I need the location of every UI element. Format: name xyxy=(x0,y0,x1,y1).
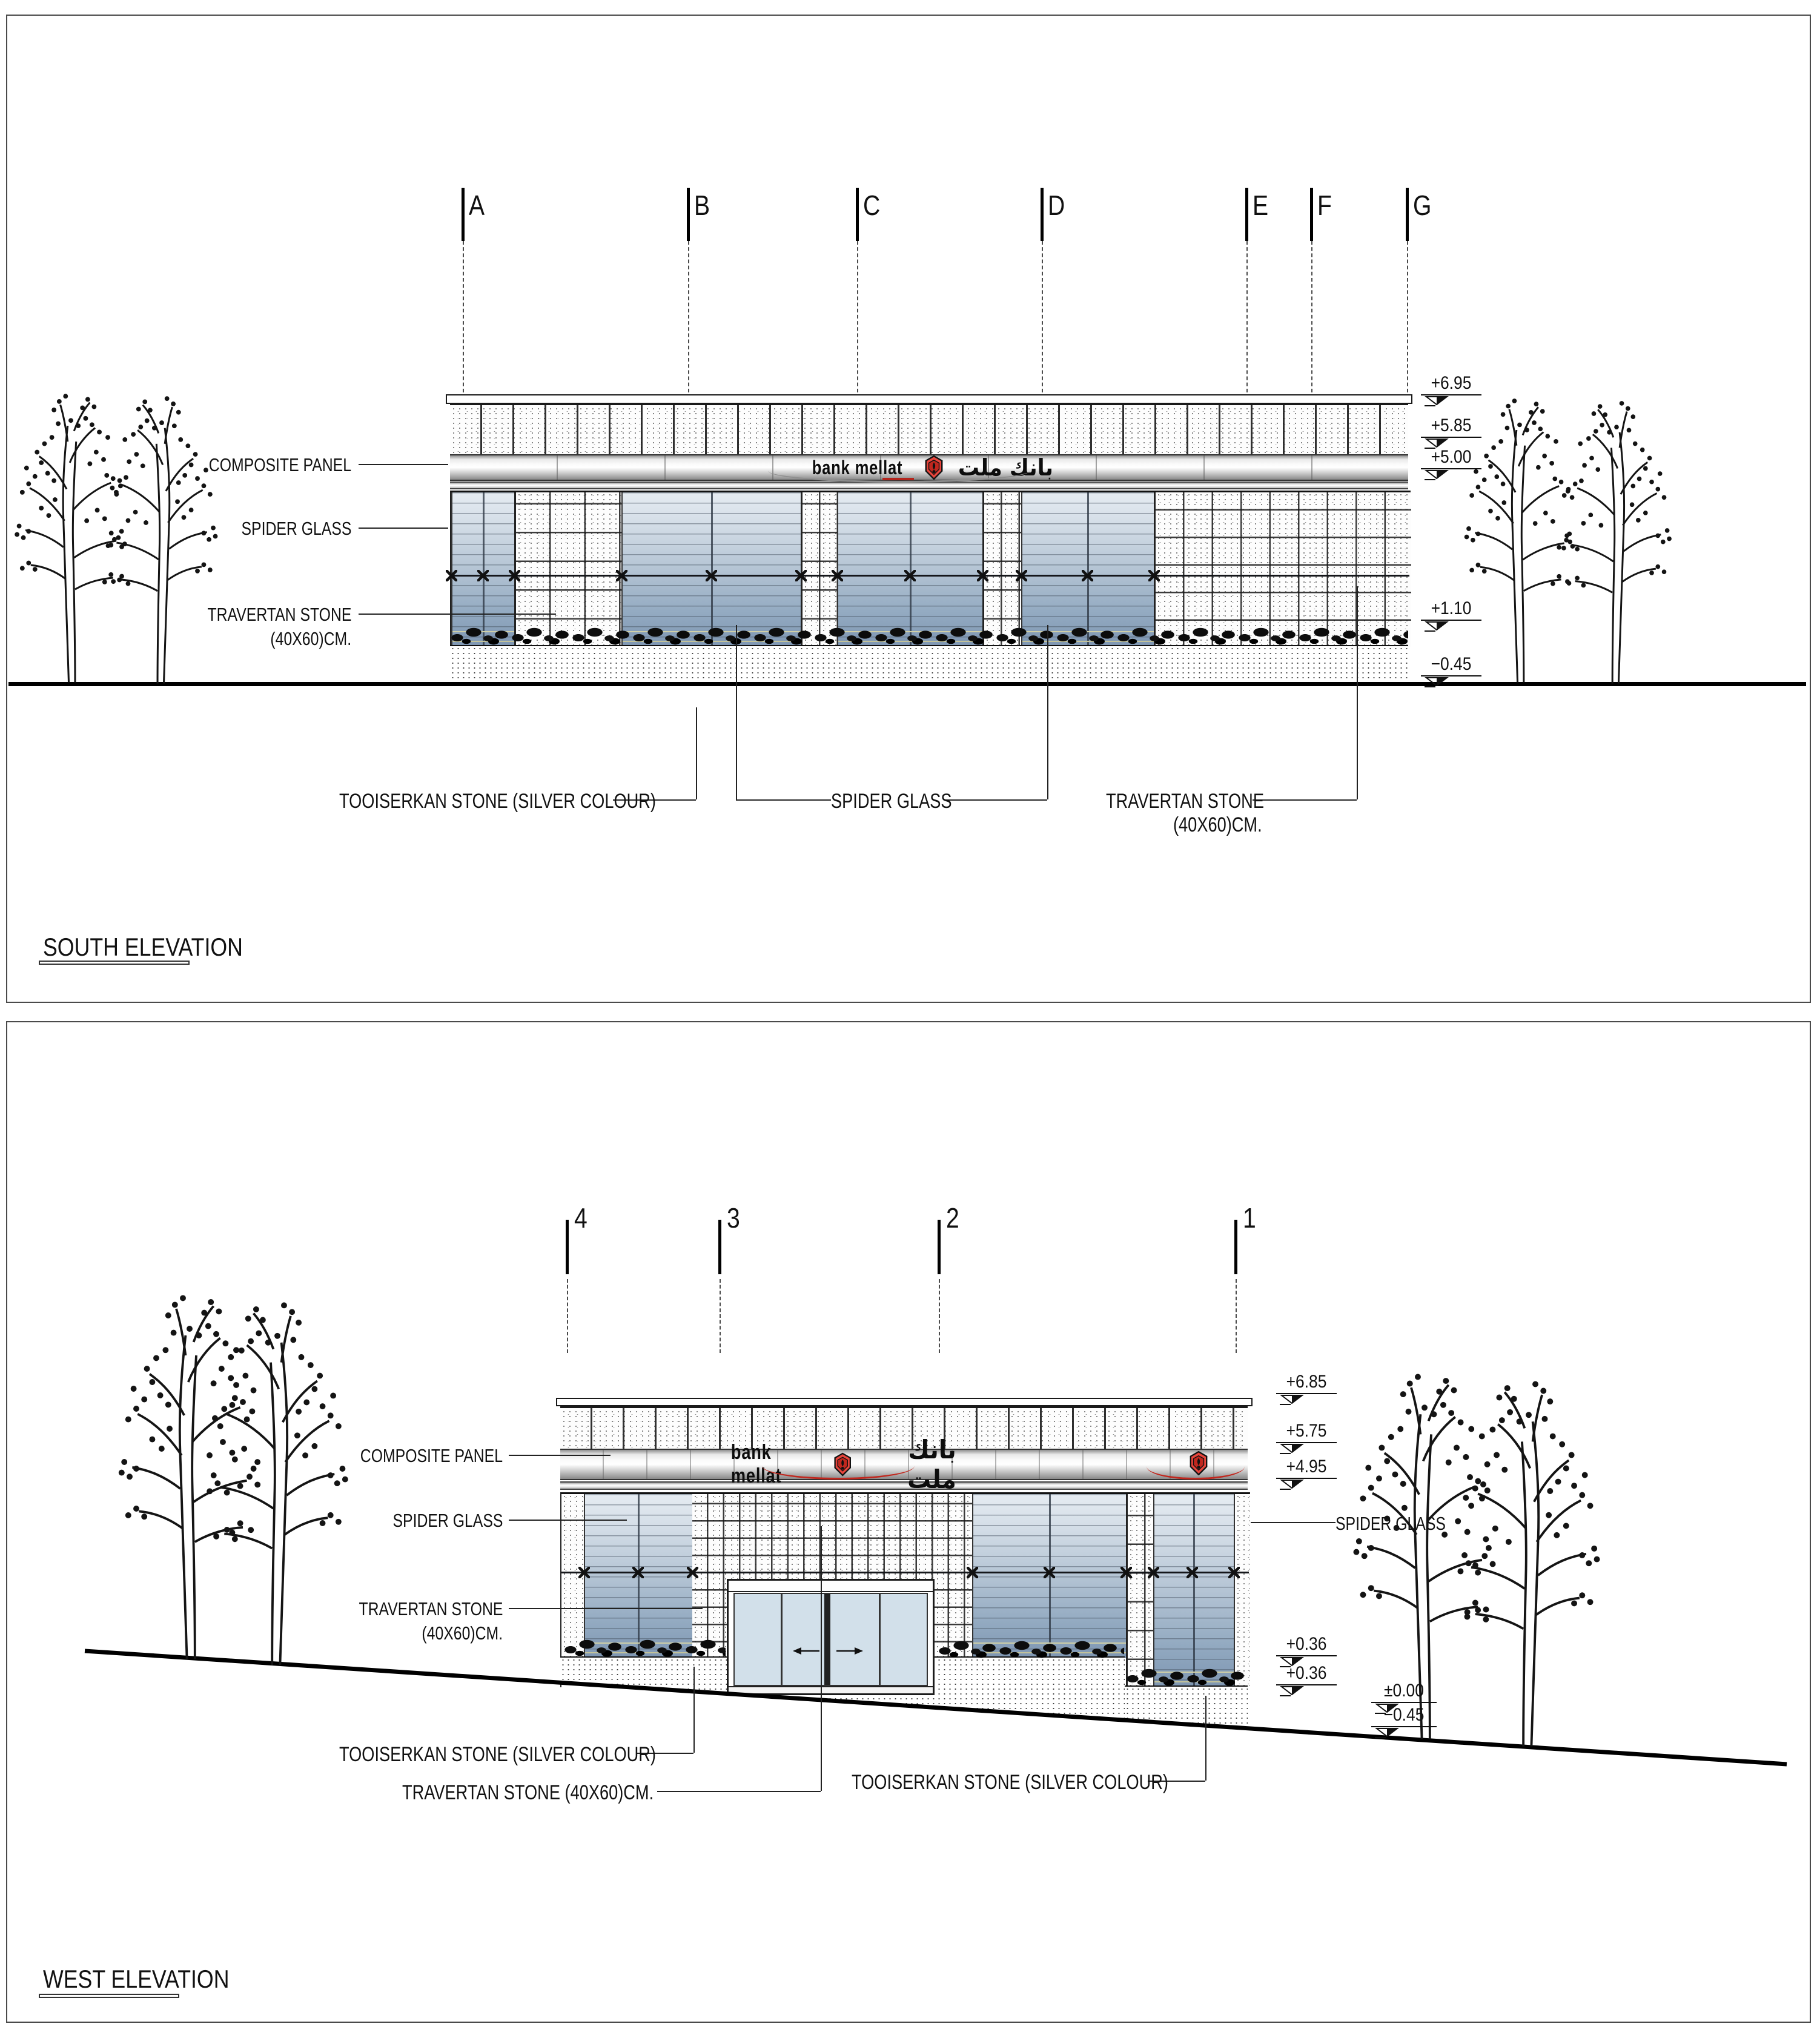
gridline-g-line xyxy=(1407,241,1408,399)
leader-line xyxy=(693,1667,695,1753)
level-value: ±0.00 xyxy=(1378,1681,1429,1701)
label-travertan-size: (40X60)CM. xyxy=(422,1622,503,1644)
level-value: −0.45 xyxy=(1428,654,1474,675)
level-value: +6.85 xyxy=(1283,1372,1329,1392)
leader-line xyxy=(736,625,737,799)
leader-line xyxy=(359,614,556,615)
signage-red-swoosh xyxy=(1147,1454,1245,1480)
label-spider-glass: SPIDER GLASS xyxy=(241,518,351,540)
level-value: +5.75 xyxy=(1283,1421,1329,1441)
gridline-b-tick xyxy=(687,188,690,241)
spider-fitting-icon xyxy=(1016,570,1027,581)
shrubbery xyxy=(450,623,1408,645)
leader-line xyxy=(1251,1522,1335,1523)
label-travertan-bottom-size: (40X60)CM. xyxy=(1173,813,1262,837)
gridline-f-label: F xyxy=(1317,189,1332,222)
level-marker: −0.45 xyxy=(1375,1705,1433,1727)
gridline-b-line xyxy=(688,241,689,399)
spider-fitting-icon xyxy=(1120,1567,1132,1578)
level-value: +5.85 xyxy=(1428,415,1474,436)
gridline-3-tick xyxy=(718,1220,721,1274)
spider-fitting-icon xyxy=(1228,1567,1240,1578)
west-title-underline xyxy=(39,1994,179,1998)
gridline-e-tick xyxy=(1245,188,1248,241)
spider-fitting-icon xyxy=(1148,570,1160,581)
spider-fitting-icon xyxy=(1187,1567,1198,1578)
level-triangle-icon xyxy=(1425,676,1449,687)
level-value: +0.36 xyxy=(1283,1634,1329,1655)
spider-fitting-icon xyxy=(1148,1567,1159,1578)
south-travertan-band xyxy=(450,403,1408,458)
tree-icon xyxy=(1446,1375,1611,1749)
spider-fitting-icon xyxy=(1082,570,1093,581)
gridline-a-line xyxy=(463,241,464,399)
gridline-d-label: D xyxy=(1048,189,1065,222)
tree-icon xyxy=(195,1296,360,1668)
gridline-1-line xyxy=(1236,1279,1237,1353)
level-value: +1.10 xyxy=(1428,598,1474,619)
gridline-4-tick xyxy=(566,1220,569,1274)
label-travertan-bottom: TRAVERTAN STONE xyxy=(1106,790,1264,813)
gridline-f-tick xyxy=(1310,188,1313,241)
signage-red-swoosh xyxy=(762,1452,915,1480)
tree-icon xyxy=(1552,396,1681,686)
gridline-f-line xyxy=(1311,241,1312,399)
leader-line xyxy=(359,528,448,529)
south-composite-strip xyxy=(450,481,1408,489)
level-value: −0.45 xyxy=(1378,1705,1429,1725)
gridline-a-tick xyxy=(462,188,465,241)
gridline-c-label: C xyxy=(863,189,880,222)
spider-fitting-icon xyxy=(477,570,489,581)
label-travertan-size: (40X60)CM. xyxy=(270,628,351,650)
gridline-2-line xyxy=(939,1279,940,1353)
spider-fitting-icon xyxy=(578,1567,590,1578)
level-triangle-icon xyxy=(1280,1443,1304,1454)
spider-fitting-icon xyxy=(977,570,988,581)
leader-line xyxy=(696,707,697,799)
signage-red-bar xyxy=(882,478,914,480)
level-marker: −0.45 xyxy=(1425,655,1478,676)
level-value: +6.95 xyxy=(1428,373,1474,394)
south-title-underline xyxy=(39,961,190,965)
label-spider-glass: SPIDER GLASS xyxy=(392,1510,503,1532)
level-marker: +6.85 xyxy=(1280,1372,1333,1394)
spider-fitting-icon xyxy=(904,570,916,581)
south-title: SOUTH ELEVATION xyxy=(43,933,243,962)
leader-line xyxy=(821,1526,822,1791)
leader-line xyxy=(736,799,831,801)
gridline-a-label: A xyxy=(469,189,485,222)
label-composite-panel: COMPOSITE PANEL xyxy=(209,454,351,476)
label-tooiserkan-stone: TOOISERKAN STONE (SILVER COLOUR) xyxy=(339,1743,656,1767)
leader-line xyxy=(509,1608,703,1609)
gridline-c-line xyxy=(857,241,858,399)
level-marker: +4.95 xyxy=(1280,1457,1333,1479)
label-travertan-inline: TRAVERTAN STONE (40X60)CM. xyxy=(402,1781,654,1805)
leader-line xyxy=(1205,1696,1206,1781)
south-tooiserkan-base xyxy=(450,645,1408,683)
level-triangle-icon xyxy=(1425,395,1449,406)
spider-fitting-icon xyxy=(616,570,627,581)
gridline-3-line xyxy=(720,1279,721,1353)
level-marker: +0.36 xyxy=(1280,1664,1333,1685)
spider-fitting-icon xyxy=(687,1567,698,1578)
level-marker: +5.00 xyxy=(1425,448,1478,469)
label-composite-panel: COMPOSITE PANEL xyxy=(360,1445,503,1467)
level-triangle-icon xyxy=(1280,1394,1304,1405)
tree-icon xyxy=(96,391,228,686)
level-triangle-icon xyxy=(1280,1479,1304,1490)
level-triangle-icon xyxy=(1375,1727,1399,1738)
gridline-d-tick xyxy=(1041,188,1044,241)
gridline-1-tick xyxy=(1234,1220,1237,1274)
level-value: +4.95 xyxy=(1283,1457,1329,1477)
gridline-2-label: 2 xyxy=(946,1202,959,1234)
label-travertan-stone: TRAVERTAN STONE xyxy=(207,604,351,626)
leader-line xyxy=(944,799,1047,801)
leader-line xyxy=(1357,586,1358,799)
level-triangle-icon xyxy=(1425,621,1449,632)
spider-fitting-icon xyxy=(832,570,843,581)
level-marker: +5.75 xyxy=(1280,1421,1333,1443)
door-header xyxy=(729,1581,933,1592)
spider-fitting-icon xyxy=(509,570,520,581)
gridline-1-label: 1 xyxy=(1243,1202,1256,1234)
level-marker: +0.36 xyxy=(1280,1635,1333,1656)
spider-fitting-icon xyxy=(446,570,457,581)
gridline-g-label: G xyxy=(1413,189,1431,222)
level-triangle-icon xyxy=(1425,469,1449,480)
leader-line xyxy=(509,1455,611,1456)
gridline-c-tick xyxy=(856,188,859,241)
gridline-e-line xyxy=(1246,241,1248,399)
leader-line xyxy=(359,464,448,465)
gridline-4-label: 4 xyxy=(574,1202,587,1234)
spider-fitting-rail xyxy=(451,575,1409,577)
gridline-d-line xyxy=(1042,241,1043,399)
level-triangle-icon xyxy=(1280,1685,1304,1696)
spider-fitting-icon xyxy=(967,1567,978,1578)
level-marker: ±0.00 xyxy=(1375,1681,1433,1703)
gridline-g-tick xyxy=(1406,188,1409,241)
leader-line xyxy=(509,1520,627,1521)
level-value: +5.00 xyxy=(1428,447,1474,468)
label-tooiserkan-stone: TOOISERKAN STONE (SILVER COLOUR) xyxy=(339,790,656,813)
spider-fitting-icon xyxy=(632,1567,644,1578)
leader-line xyxy=(1253,799,1357,801)
west-title: WEST ELEVATION xyxy=(43,1965,229,1994)
label-spider-glass-right: SPIDER GLASS xyxy=(1335,1513,1446,1535)
level-marker: +6.95 xyxy=(1425,374,1478,395)
gridline-e-label: E xyxy=(1253,189,1268,222)
gridline-2-tick xyxy=(938,1220,941,1274)
level-value: +0.36 xyxy=(1283,1663,1329,1684)
spider-fitting-icon xyxy=(1044,1567,1055,1578)
label-tooiserkan-stone-right: TOOISERKAN STONE (SILVER COLOUR) xyxy=(852,1771,1168,1794)
south-parapet-cap xyxy=(446,394,1412,404)
elevation-sheet: A B C D E F G bank mellat بانك ملت xyxy=(0,0,1817,2044)
west-parapet-cap xyxy=(556,1398,1253,1406)
spider-fitting-rail xyxy=(561,1572,1249,1573)
gridline-3-label: 3 xyxy=(727,1202,740,1234)
level-marker: +1.10 xyxy=(1425,599,1478,621)
label-spider-glass-bottom: SPIDER GLASS xyxy=(831,790,952,813)
gridline-4-line xyxy=(567,1279,568,1353)
gridline-b-label: B xyxy=(694,189,710,222)
leader-line xyxy=(1047,625,1048,799)
spider-fitting-icon xyxy=(706,570,717,581)
label-travertan-stone: TRAVERTAN STONE xyxy=(359,1598,503,1620)
spider-fitting-icon xyxy=(795,570,807,581)
level-marker: +5.85 xyxy=(1425,416,1478,438)
leader-line xyxy=(657,1791,821,1792)
